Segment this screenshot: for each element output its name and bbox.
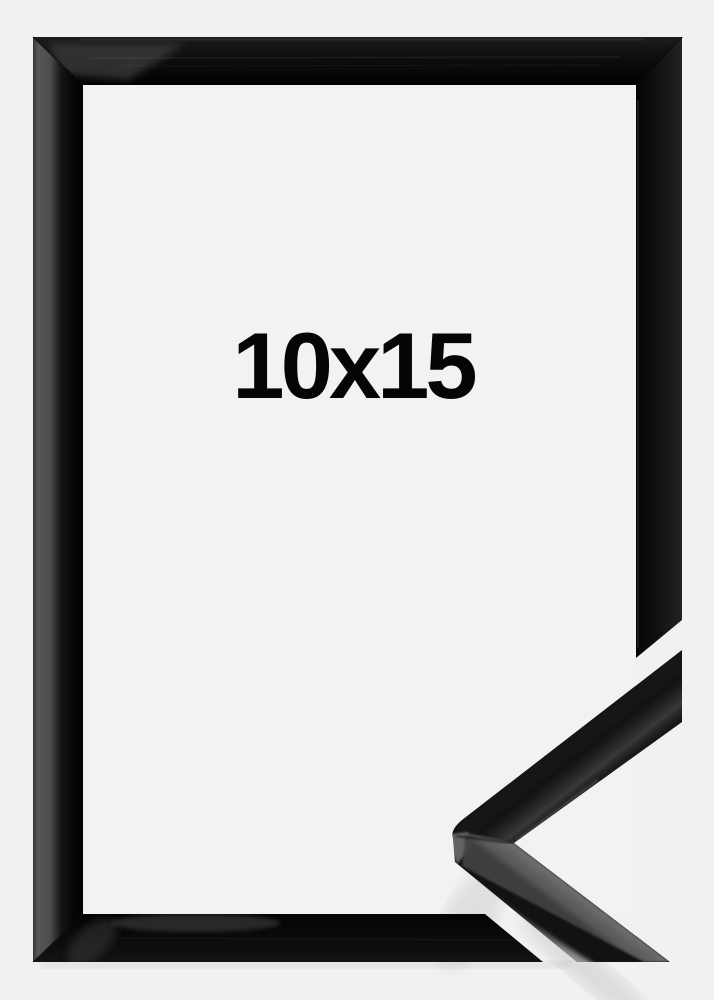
frame-left-rail — [33, 37, 83, 962]
picture-frame-graphic — [0, 0, 714, 1000]
frame-product-photo: 10x15 — [0, 0, 714, 1000]
size-label: 10x15 — [232, 312, 473, 420]
frame-right-rail — [636, 37, 682, 658]
